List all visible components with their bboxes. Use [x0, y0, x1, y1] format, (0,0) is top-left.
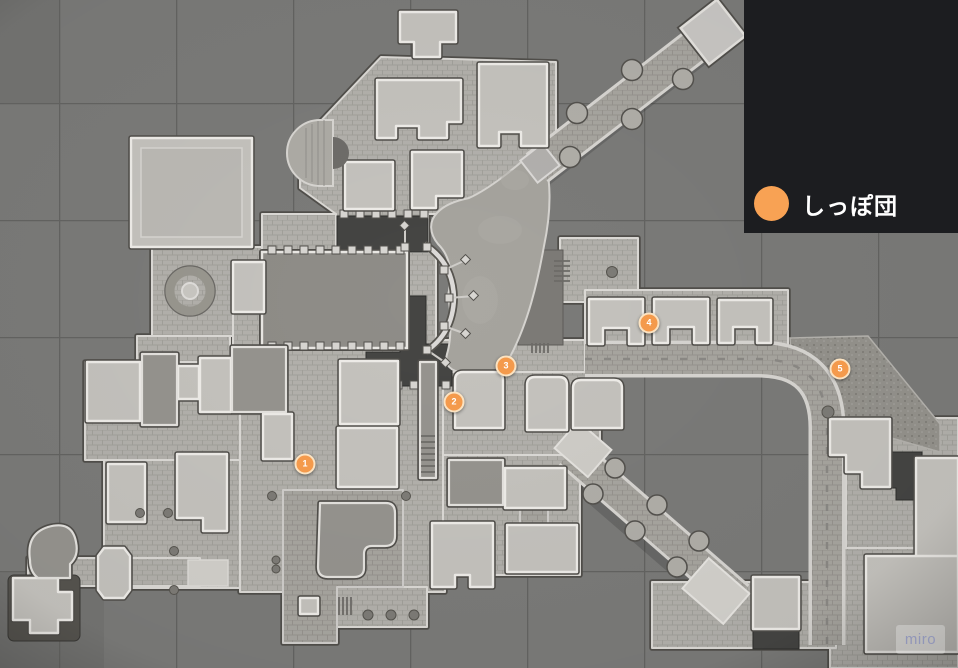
map-marker-3[interactable]: 3 [496, 356, 517, 377]
legend-item-label: しっぽ団 [802, 187, 898, 221]
faction-color-swatch [754, 186, 789, 221]
map-marker-2[interactable]: 2 [444, 392, 465, 413]
map-marker-1[interactable]: 1 [295, 454, 316, 475]
legend-item: しっぽ団 [754, 186, 898, 221]
legend-panel: しっぽ団 [744, 0, 958, 233]
miro-watermark: miro [896, 625, 945, 654]
map-screen: 12345 しっぽ団 miro [0, 0, 958, 668]
map-marker-5[interactable]: 5 [830, 359, 851, 380]
map-marker-4[interactable]: 4 [639, 313, 660, 334]
